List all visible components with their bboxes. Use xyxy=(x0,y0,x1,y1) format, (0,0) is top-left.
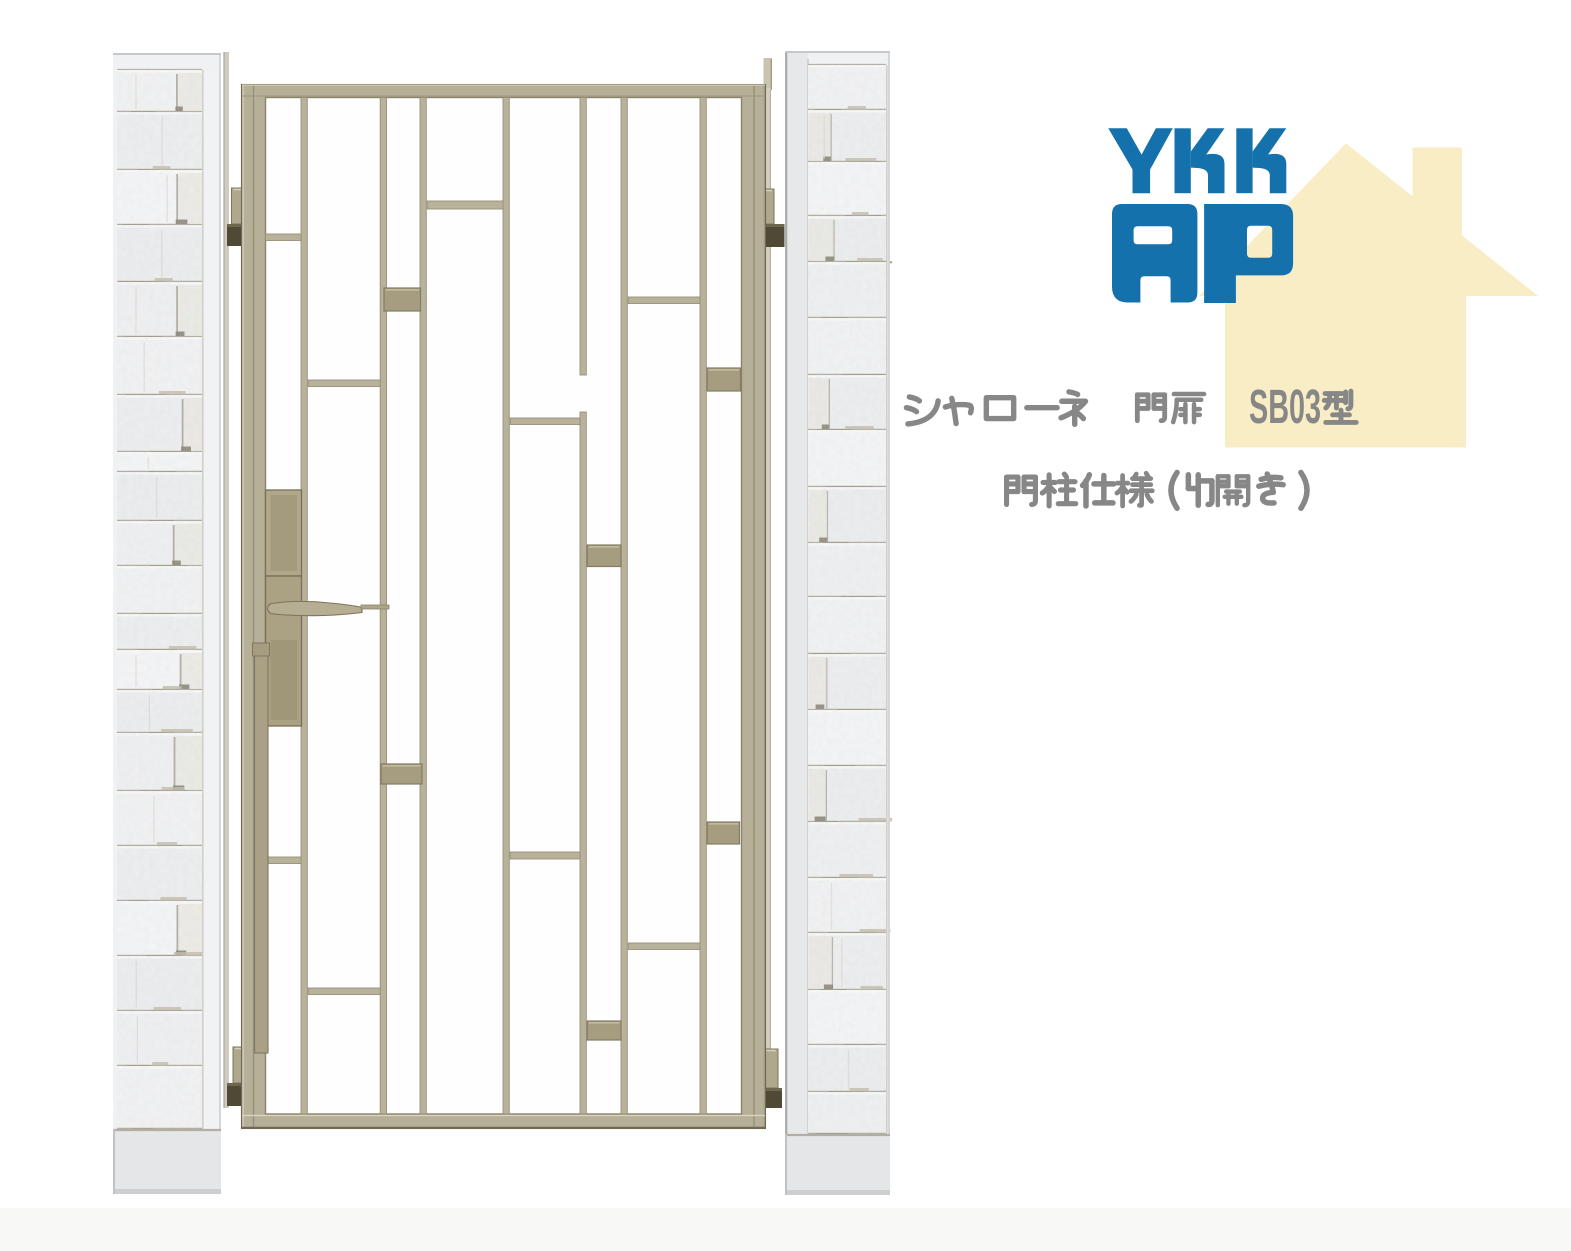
svg-text:SB03: SB03 xyxy=(1249,381,1321,434)
